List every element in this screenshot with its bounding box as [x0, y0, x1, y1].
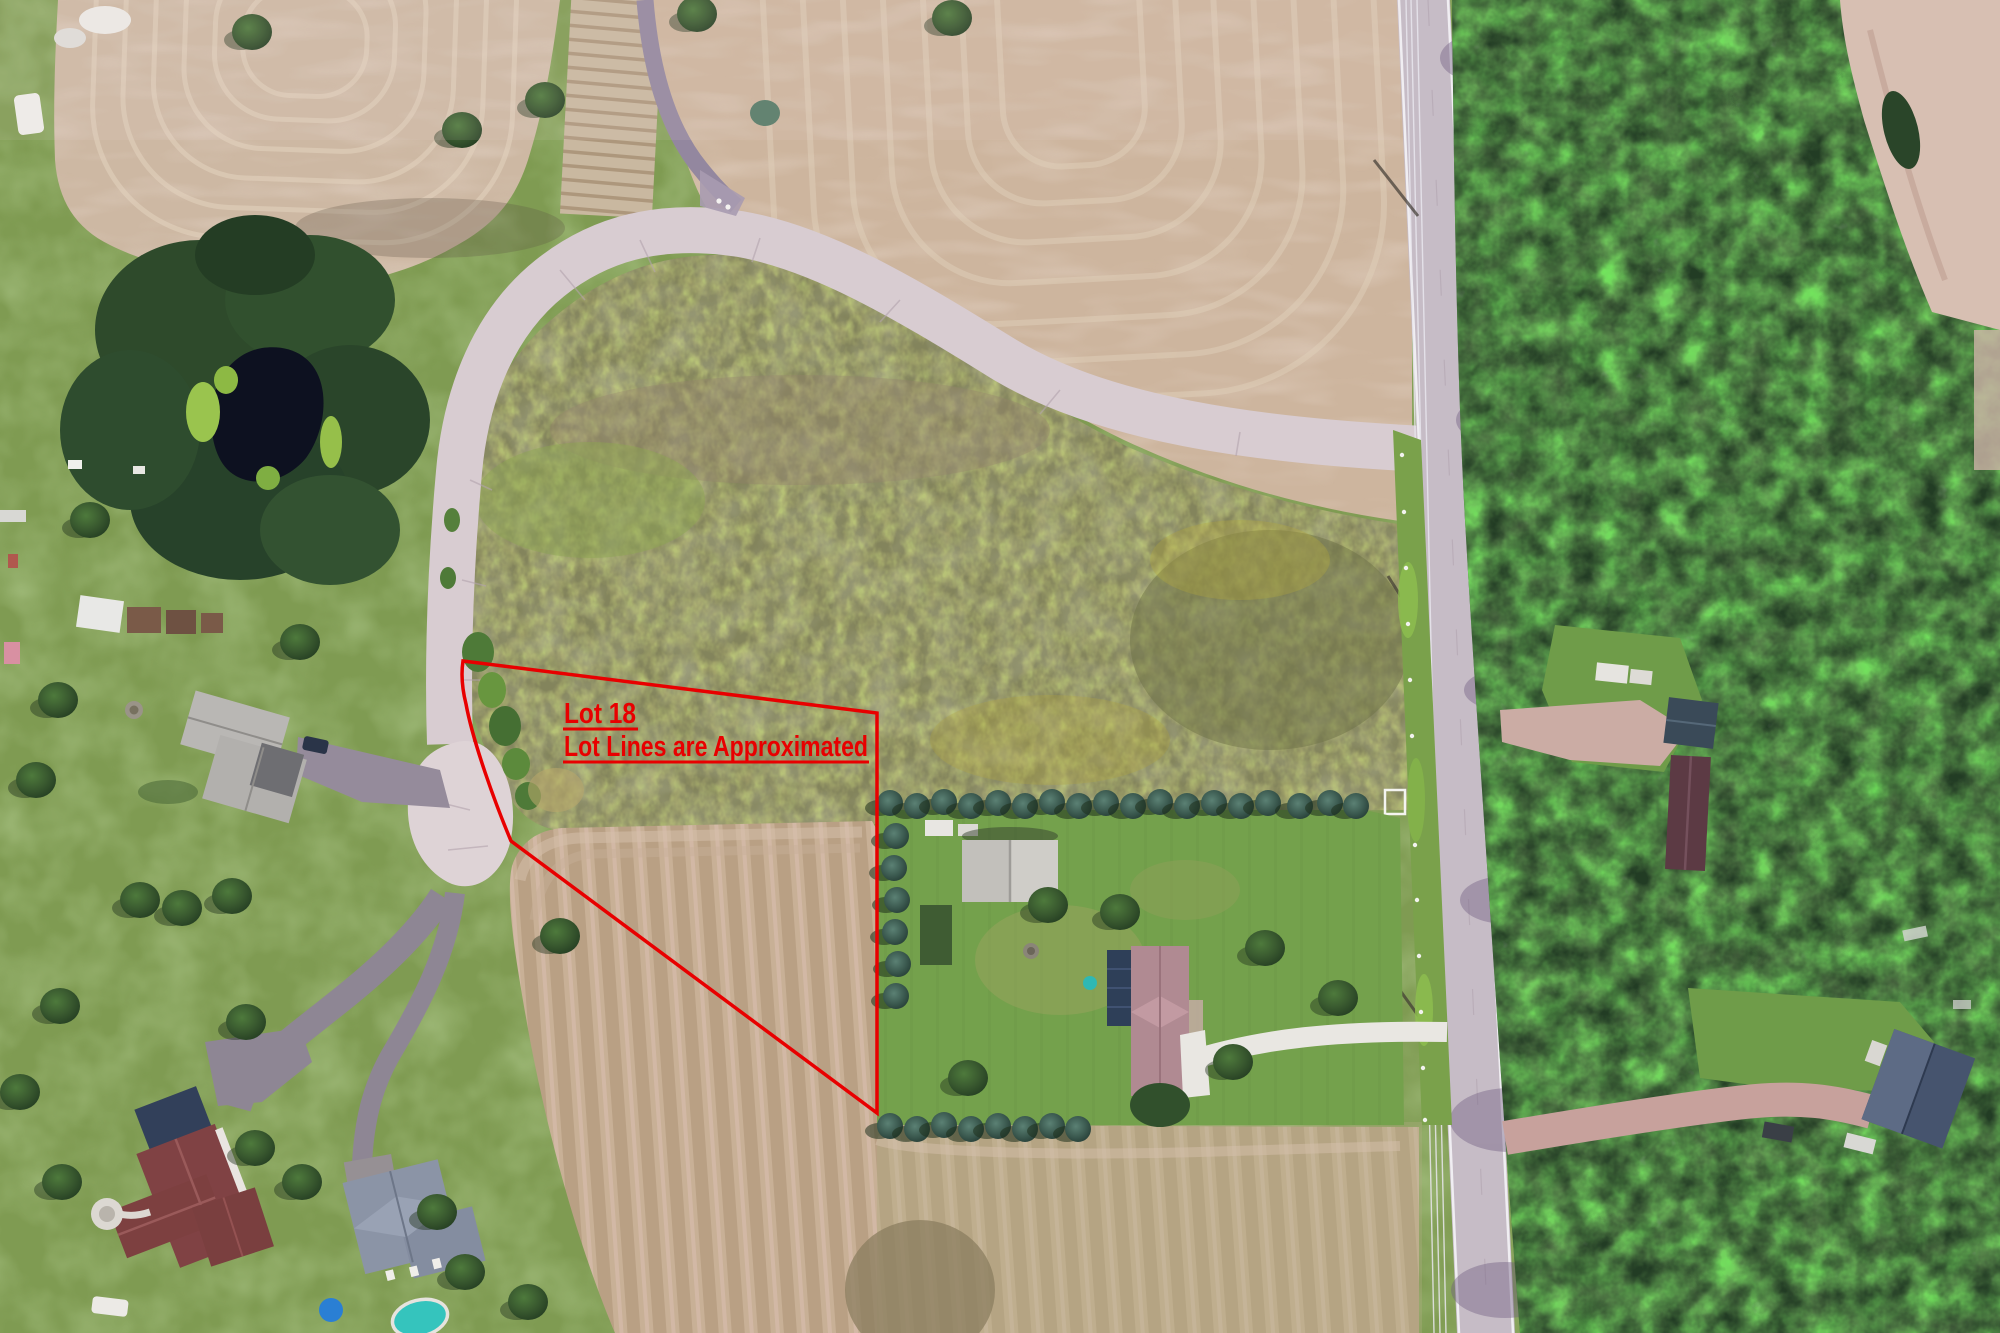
- trailer: [1595, 662, 1629, 683]
- trailer: [0, 510, 26, 522]
- white-shed: [76, 595, 124, 633]
- mailbox: [725, 204, 730, 209]
- mailbox: [716, 198, 721, 203]
- bright-bush: [320, 416, 342, 468]
- tree: [1130, 1083, 1190, 1127]
- garden-bed: [166, 610, 196, 634]
- lot-disclaimer-label: Lot Lines are Approximated: [564, 731, 868, 763]
- house-shadow: [138, 780, 198, 804]
- goldenrod-patch: [1150, 520, 1330, 600]
- aerial-photo: Lot 18 Lot Lines are Approximated: [0, 0, 2000, 1333]
- walkway: [120, 1212, 150, 1215]
- kiddie-pool-teal: [1083, 976, 1097, 990]
- driveway-apron: [1180, 1030, 1210, 1098]
- garden-patch: [920, 905, 952, 965]
- kiddie-pool-blue: [319, 1298, 343, 1322]
- pink-flowerbed: [4, 642, 20, 664]
- building-long-maroon: [1665, 755, 1711, 871]
- debris-white: [1953, 1000, 1971, 1009]
- tall-grass: [528, 768, 584, 812]
- trailer: [925, 820, 953, 836]
- goldenrod-patch: [930, 695, 1170, 785]
- green-growth-patch: [475, 442, 705, 558]
- lot-number-label: Lot 18: [564, 698, 636, 730]
- red-item: [8, 554, 18, 568]
- house-dark-roof: [1663, 697, 1718, 749]
- garden-bed: [127, 607, 161, 633]
- bright-bush: [186, 382, 220, 442]
- haze-tint: [0, 0, 1400, 140]
- garden-bed: [201, 613, 223, 633]
- trailer: [1629, 669, 1652, 685]
- aerial-photo-canvas: Lot 18 Lot Lines are Approximated: [0, 0, 2000, 1333]
